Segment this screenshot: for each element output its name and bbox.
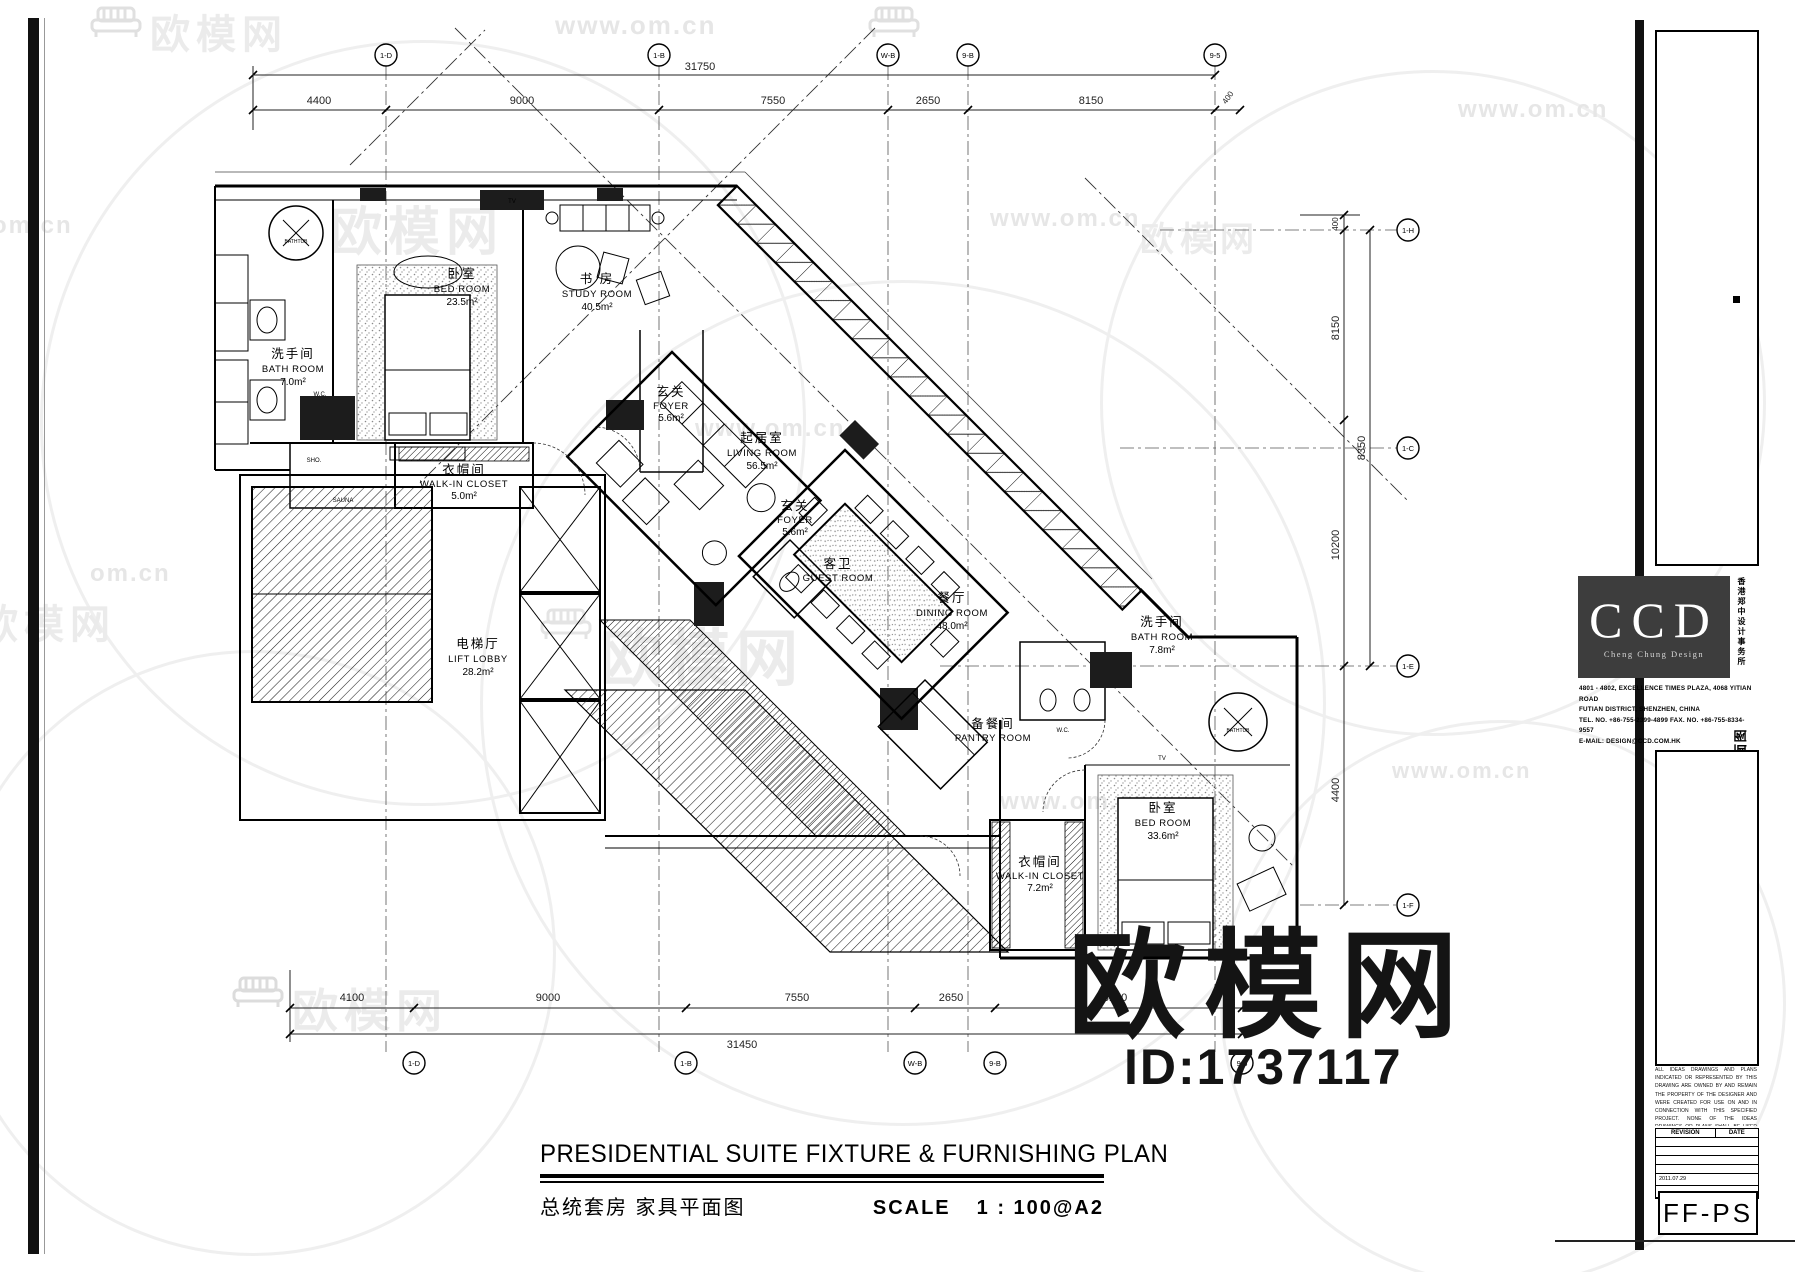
svg-text:起居室: 起居室 [740, 430, 784, 445]
ccd-address-line2: FUTIAN DISTRICT, SHENZHEN, CHINA [1579, 705, 1757, 716]
footer-scale: SCALE1 : 100@A2 [873, 1197, 1104, 1220]
svg-text:书 房: 书 房 [580, 271, 614, 286]
grid-label: 1-F [1402, 901, 1414, 910]
dimension-chain-top: 31750 4400 9000 7550 2650 8150 400 [249, 61, 1244, 130]
dim-bottom-3: 7550 [785, 992, 809, 1004]
sauna-label: SAUNA [333, 498, 354, 504]
svg-text:电梯厅: 电梯厅 [456, 637, 500, 651]
svg-text:衣帽间: 衣帽间 [1018, 854, 1062, 869]
site-watermark-text: 欧模网 [1068, 928, 1476, 1046]
grid-label: 9-5 [1210, 51, 1221, 60]
room-label-foyer-1: 玄关 FOYER 5.6m² [653, 384, 689, 424]
drawing-sheet: www.om.cn www.om.cn www.om.cn www.om.cn … [0, 0, 1800, 1272]
grid-label: 1-H [1402, 226, 1414, 235]
ccd-logo: CCD [1589, 595, 1719, 645]
footer-rule-thick [540, 1174, 1104, 1178]
svg-text:备餐间: 备餐间 [971, 716, 1015, 731]
room-label-lift-lobby: 电梯厅 LIFT LOBBY 28.2m² [448, 637, 508, 678]
footer-title-en: PRESIDENTIAL SUITE FIXTURE & FURNISHING … [540, 1140, 1081, 1169]
disclaimer: ALL IDEAS DRAWINGS AND PLANS INDICATED O… [1655, 1066, 1757, 1126]
revision-header: REVISION [1656, 1129, 1716, 1137]
svg-text:7.2m²: 7.2m² [1027, 883, 1053, 894]
svg-text:LIFT LOBBY: LIFT LOBBY [448, 654, 508, 665]
grid-label: 1-B [680, 1059, 692, 1068]
svg-text:5.6m²: 5.6m² [658, 413, 684, 424]
tv-label: TV [508, 199, 516, 205]
svg-text:23.5m²: 23.5m² [446, 297, 478, 308]
grid-label: 9-B [989, 1059, 1001, 1068]
svg-text:40.5m²: 40.5m² [581, 302, 613, 313]
grid-bubbles-right: 1-H 1-C 1-E 1-F [1397, 219, 1419, 916]
dim-bottom-2: 9000 [536, 992, 560, 1004]
svg-text:衣帽间: 衣帽间 [442, 462, 486, 477]
svg-text:BED ROOM: BED ROOM [434, 284, 491, 295]
tv-label: TV [1158, 756, 1166, 762]
svg-text:28.2m²: 28.2m² [462, 667, 494, 678]
ccd-side-text: 香港郑中设计事务所 [1736, 577, 1747, 679]
svg-text:FOYER: FOYER [777, 515, 813, 526]
grid-label: 1-D [380, 51, 393, 60]
sheet-border-bar [28, 18, 39, 1254]
dim-top-total: 31750 [685, 61, 716, 73]
dim-right-3: 10200 [1330, 530, 1342, 561]
grid-label: W-B [908, 1059, 922, 1068]
ccd-address-line3: TEL. NO. +86-755-2399-4899 FAX. NO. +86-… [1579, 716, 1757, 737]
grid-bubbles-top: 1-D 1-B W-B 9-B 9-5 [375, 44, 1226, 66]
svg-text:48.0m²: 48.0m² [936, 621, 968, 632]
bathtub-label: BATHTUB [1227, 728, 1251, 734]
svg-text:LIVING ROOM: LIVING ROOM [727, 448, 797, 459]
dim-bottom-total: 31450 [727, 1039, 758, 1051]
bathtub-icon: BATHTUB [269, 206, 323, 260]
svg-text:56.5m²: 56.5m² [746, 461, 778, 472]
dim-right-4: 4400 [1330, 778, 1342, 802]
room-label-foyer-2: 玄关 FOYER 5.6m² [777, 498, 813, 538]
svg-text:DINING ROOM: DINING ROOM [916, 608, 988, 619]
dim-right-small: 400 [1331, 217, 1340, 231]
room-label-study: 书 房 STUDY ROOM 40.5m² [562, 271, 632, 313]
dim-top-1: 4400 [307, 95, 331, 107]
ccd-address-line1: 4801 - 4802, EXCELLENCE TIMES PLAZA, 406… [1579, 684, 1757, 705]
titleblock-sheet-box [1655, 750, 1759, 1066]
svg-text:7.0m²: 7.0m² [280, 377, 306, 388]
dim-top-small: 400 [1220, 89, 1235, 106]
dim-bottom-4: 2650 [939, 992, 963, 1004]
svg-text:7.8m²: 7.8m² [1149, 645, 1175, 656]
revision-row [1656, 1147, 1758, 1156]
window-band [718, 186, 1142, 610]
drawing-number: FF-PS [1658, 1191, 1758, 1235]
sheet-title-footer: PRESIDENTIAL SUITE FIXTURE & FURNISHING … [540, 1140, 1104, 1220]
grid-label: 1-D [408, 1059, 421, 1068]
bathtub-label: BATHTUB [285, 239, 309, 245]
grid-label: 1-B [653, 51, 665, 60]
revision-table: REVISION DATE 2011.07.29 [1655, 1128, 1759, 1199]
floor-plan: 31750 4400 9000 7550 2650 8150 400 [0, 0, 1800, 1272]
ccd-logo-box: CCD Cheng Chung Design [1578, 576, 1730, 678]
footer-rule-thin [540, 1181, 1104, 1183]
svg-text:GUEST ROOM: GUEST ROOM [803, 573, 874, 584]
revision-row [1656, 1138, 1758, 1147]
grid-label: W-B [881, 51, 895, 60]
date-field: 2011.07.29 [1656, 1174, 1758, 1186]
room-label-closet-1: 衣帽间 WALK-IN CLOSET 5.0m² [420, 462, 508, 502]
grid-label: 1-E [1402, 662, 1414, 671]
sheet-bottom-hairline [1555, 1240, 1795, 1242]
cc d-subtitle: Cheng Chung Design [1604, 649, 1704, 659]
footer-title-cn: 总统套房 家具平面图 [540, 1191, 746, 1220]
svg-text:33.6m²: 33.6m² [1147, 831, 1179, 842]
svg-text:WALK-IN CLOSET: WALK-IN CLOSET [996, 871, 1084, 882]
titleblock-hotel-box [1655, 30, 1759, 566]
grid-label: 1-C [1402, 444, 1415, 453]
svg-text:洗手间: 洗手间 [271, 347, 315, 361]
svg-text:STUDY ROOM: STUDY ROOM [562, 289, 632, 300]
svg-text:BATH ROOM: BATH ROOM [262, 364, 324, 375]
revision-row [1656, 1165, 1758, 1174]
date-header: DATE [1716, 1129, 1758, 1137]
dim-top-3: 7550 [761, 95, 785, 107]
sheet-border-hairline [44, 18, 45, 1254]
svg-text:餐厅: 餐厅 [937, 590, 966, 605]
svg-text:BATH ROOM: BATH ROOM [1131, 632, 1193, 643]
svg-text:PANTRY ROOM: PANTRY ROOM [955, 733, 1031, 744]
svg-text:FOYER: FOYER [653, 401, 689, 412]
dim-top-2: 9000 [510, 95, 534, 107]
svg-text:玄关: 玄关 [780, 498, 809, 513]
wc-label: W.C. [1057, 728, 1070, 734]
dimension-chain-right: 400 8150 10200 4400 8350 [1300, 211, 1374, 909]
svg-text:客卫: 客卫 [823, 556, 852, 571]
svg-text:5.0m²: 5.0m² [451, 491, 477, 502]
room-label-bath-1: 洗手间 BATH ROOM 7.0m² [262, 347, 324, 388]
dim-top-5: 8150 [1079, 95, 1103, 107]
svg-text:WALK-IN CLOSET: WALK-IN CLOSET [420, 479, 508, 490]
svg-text:洗手间: 洗手间 [1140, 615, 1184, 629]
shower-label: SHO. [307, 458, 322, 464]
revision-row [1656, 1156, 1758, 1165]
titleblock-square-mark [1733, 296, 1740, 303]
dim-top-4: 2650 [916, 95, 940, 107]
scale-label: SCALE [873, 1197, 951, 1219]
ccd-address: 4801 - 4802, EXCELLENCE TIMES PLAZA, 406… [1579, 684, 1757, 747]
room-label-bath-2: 洗手间 BATH ROOM 7.8m² [1131, 615, 1193, 656]
ccd-address-line4: E-MAIL: DESIGN@CCD.COM.HK [1579, 737, 1757, 748]
svg-text:BED ROOM: BED ROOM [1135, 818, 1192, 829]
site-watermark-id: ID:1737117 [1124, 1038, 1403, 1096]
dim-right-2: 8350 [1356, 436, 1368, 460]
grid-label: 9-B [962, 51, 974, 60]
dim-right-1: 8150 [1330, 316, 1342, 340]
svg-text:卧室: 卧室 [1148, 800, 1177, 815]
svg-text:卧室: 卧室 [447, 266, 476, 281]
svg-text:玄关: 玄关 [656, 384, 685, 399]
dim-bottom-1: 4100 [340, 992, 364, 1004]
svg-text:5.6m²: 5.6m² [782, 527, 808, 538]
scale-value: 1 : 100@A2 [977, 1197, 1104, 1219]
bathtub-icon: BATHTUB [1209, 693, 1267, 751]
wc-label: W.C. [314, 392, 327, 398]
